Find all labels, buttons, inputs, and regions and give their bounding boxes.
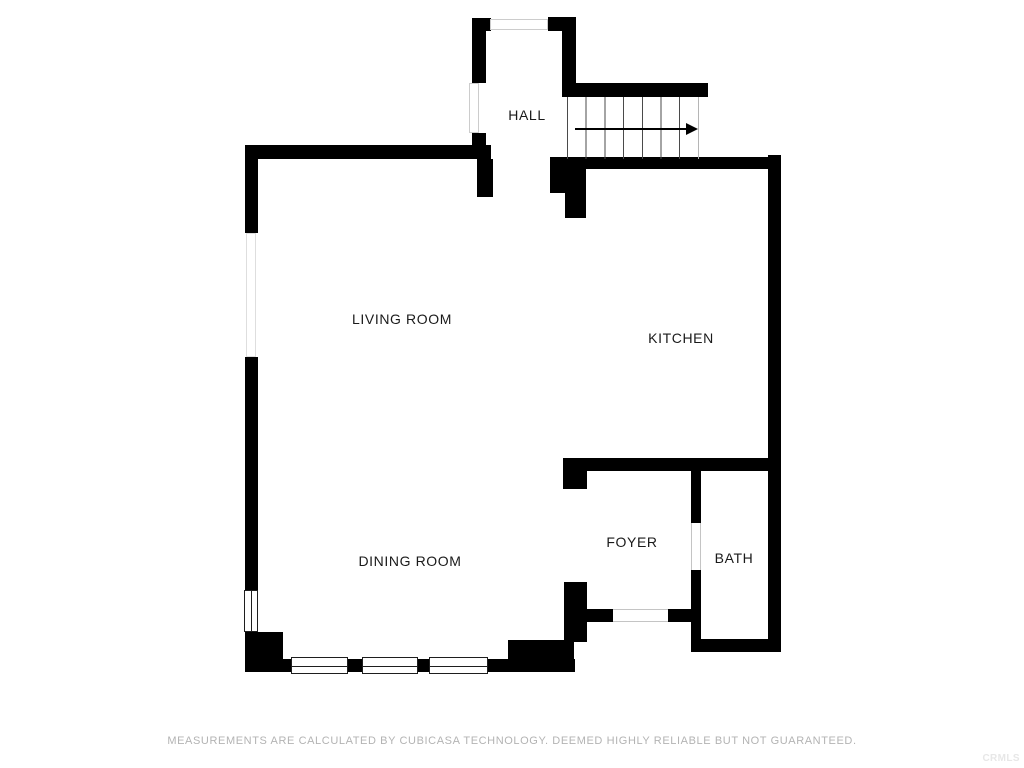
room-label-living-room: LIVING ROOM <box>352 311 452 327</box>
stairs-direction-arrow <box>575 128 687 130</box>
window-mullion <box>363 666 417 667</box>
wall-segment <box>562 83 708 97</box>
wall-segment <box>245 145 491 159</box>
window-symbol <box>490 19 548 30</box>
room-label-dining-room: DINING ROOM <box>358 553 461 569</box>
room-label-hall: HALL <box>508 107 545 123</box>
window-symbol <box>429 657 488 674</box>
wall-segment <box>565 193 586 218</box>
room-label-bath: BATH <box>715 550 754 566</box>
wall-segment <box>472 133 486 159</box>
wall-segment <box>691 470 701 523</box>
wall-segment <box>245 145 258 233</box>
stairs-direction-arrow-head <box>686 123 698 135</box>
measurement-disclaimer: MEASUREMENTS ARE CALCULATED BY CUBICASA … <box>0 735 1024 747</box>
wall-segment <box>563 458 781 471</box>
window-symbol <box>291 657 348 674</box>
wall-segment <box>477 159 493 197</box>
window-mullion <box>292 666 347 667</box>
door-opening <box>613 609 668 622</box>
window-symbol <box>244 590 258 632</box>
window-symbol <box>469 83 479 133</box>
window-symbol <box>246 233 256 357</box>
door-opening <box>691 523 701 570</box>
room-label-kitchen: KITCHEN <box>648 330 714 346</box>
wall-segment <box>245 357 258 590</box>
floor-plan: HALL LIVING ROOM KITCHEN DINING ROOM FOY… <box>0 0 1024 768</box>
window-mullion <box>251 591 252 631</box>
wall-segment <box>550 157 586 193</box>
window-symbol <box>362 657 418 674</box>
room-label-foyer: FOYER <box>606 534 657 550</box>
wall-segment <box>563 458 587 489</box>
crmls-watermark: CRMLS <box>982 753 1020 764</box>
wall-segment <box>564 582 587 642</box>
wall-segment <box>587 609 613 622</box>
window-mullion <box>430 666 487 667</box>
wall-segment <box>508 640 574 672</box>
wall-segment <box>768 155 781 652</box>
wall-segment <box>548 17 576 31</box>
wall-segment <box>472 18 491 31</box>
